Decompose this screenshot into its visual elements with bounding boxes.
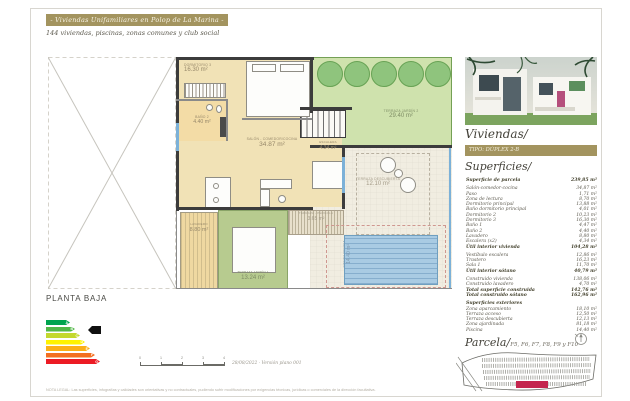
scale-bar: 01234 bbox=[140, 356, 224, 368]
wall bbox=[176, 211, 177, 289]
render-photo bbox=[465, 57, 597, 125]
room-label: TERRAZA - PÉRGOLA 3.65 m² bbox=[288, 212, 344, 222]
superficies-title: Superficies/ bbox=[465, 160, 531, 173]
kitchen-counter-icon bbox=[205, 177, 231, 209]
pillow-icon bbox=[280, 64, 304, 72]
scale-segment bbox=[161, 364, 182, 367]
wall bbox=[300, 107, 352, 110]
wall bbox=[310, 57, 313, 113]
plan-title: PLANTA BAJA bbox=[46, 294, 107, 303]
scale-tick bbox=[203, 362, 204, 366]
wall bbox=[176, 207, 313, 210]
scale-tick bbox=[182, 362, 183, 366]
scale-tick-label: 4 bbox=[223, 356, 225, 360]
bush-icon bbox=[425, 61, 451, 87]
scale-segment bbox=[203, 364, 224, 367]
room-label: BAÑO 2 4.40 m² bbox=[181, 115, 223, 126]
room-label: TERRAZA JARDÍN 1 13.24 m² bbox=[224, 271, 282, 282]
room-label: PISCINA PRIVADA 14.40 m² bbox=[343, 234, 353, 274]
mirror-unit-cross bbox=[48, 57, 176, 289]
bush-icon bbox=[398, 61, 424, 87]
outdoor-table-icon bbox=[232, 227, 276, 273]
wall bbox=[242, 118, 312, 120]
superficies-table: Superficie de parcela239,85 m²Salón-come… bbox=[466, 178, 597, 333]
sofa-icon bbox=[260, 189, 270, 207]
superficies-row: Total construido sótano162,96 m² bbox=[466, 293, 597, 298]
version-note: 28/08/2022 · Versión plano 001 bbox=[232, 361, 302, 366]
window bbox=[449, 148, 451, 289]
energy-bar-g: G bbox=[46, 359, 100, 364]
wall bbox=[226, 99, 228, 141]
energy-bar-d: D bbox=[46, 340, 85, 345]
plot-edge bbox=[176, 288, 452, 289]
window bbox=[176, 123, 179, 151]
tipo-badge: TIPO: DÚPLEX 2-B bbox=[465, 145, 597, 156]
floor-plan: DORMITORIO 3 16.30 m² BAÑO 2 4.40 m² SAL… bbox=[176, 57, 452, 289]
superficies-row: Superficie de parcela239,85 m² bbox=[466, 178, 597, 183]
wall bbox=[176, 99, 228, 101]
plan-sheet: - Viviendas Unifamiliares en Polop de La… bbox=[0, 0, 630, 401]
masterplan-map bbox=[456, 347, 602, 394]
energy-bar-b: B bbox=[46, 327, 75, 332]
room-label: DORMITORIO 3 16.30 m² bbox=[184, 63, 240, 75]
toilet-icon bbox=[216, 105, 222, 113]
hob-icon bbox=[213, 197, 219, 203]
scale-tick bbox=[224, 362, 225, 366]
project-subtitle: 144 viviendas, piscinas, zonas comunes y… bbox=[46, 29, 219, 37]
bush-icon bbox=[344, 61, 370, 87]
room-label: LAVADERO 8.80 m² bbox=[182, 223, 216, 234]
sink-icon bbox=[206, 104, 213, 111]
north-compass-icon bbox=[572, 330, 588, 346]
energy-bar-f: F bbox=[46, 353, 95, 358]
energy-bar-c: C bbox=[46, 333, 80, 338]
energy-bar-a: A bbox=[46, 320, 70, 325]
scale-tick-label: 2 bbox=[181, 356, 183, 360]
scale-tick-label: 0 bbox=[139, 356, 141, 360]
window bbox=[342, 157, 345, 193]
room-label: TERRAZA DESCUBIERTA 12.10 m² bbox=[348, 177, 408, 189]
scale-tick-label: 1 bbox=[160, 356, 162, 360]
scale-tick bbox=[161, 362, 162, 366]
scale-tick-label: 3 bbox=[202, 356, 204, 360]
energy-bar-e: E bbox=[46, 346, 90, 351]
energy-rating-marker bbox=[88, 326, 101, 334]
scale-tick bbox=[140, 362, 141, 366]
pool bbox=[344, 235, 438, 285]
room-label: ESCALERA 4.34 m² bbox=[308, 141, 348, 151]
room-label: SALÓN - COMEDOR/COCINA 34.87 m² bbox=[232, 137, 312, 149]
wardrobe-icon bbox=[184, 83, 226, 98]
superficies-row: Útil interior sótano40,79 m² bbox=[466, 269, 597, 274]
dining-table-icon bbox=[312, 161, 344, 189]
wall bbox=[176, 57, 314, 60]
pillow-icon bbox=[252, 64, 276, 72]
kitchen-sink-icon bbox=[213, 183, 219, 189]
legal-note: NOTA LEGAL: Las superficies, infografías… bbox=[46, 388, 406, 392]
bush-icon bbox=[317, 61, 343, 87]
room-label: TERRAZA JARDÍN 2 29.40 m² bbox=[366, 109, 436, 121]
project-banner: - Viviendas Unifamiliares en Polop de La… bbox=[46, 14, 228, 26]
viviendas-title: Viviendas/ bbox=[465, 127, 528, 141]
sofa-icon bbox=[260, 179, 292, 189]
bush-icon bbox=[371, 61, 397, 87]
superficies-row: Útil interior vivienda104,28 m² bbox=[466, 245, 597, 250]
coffee-table-icon bbox=[278, 195, 286, 203]
